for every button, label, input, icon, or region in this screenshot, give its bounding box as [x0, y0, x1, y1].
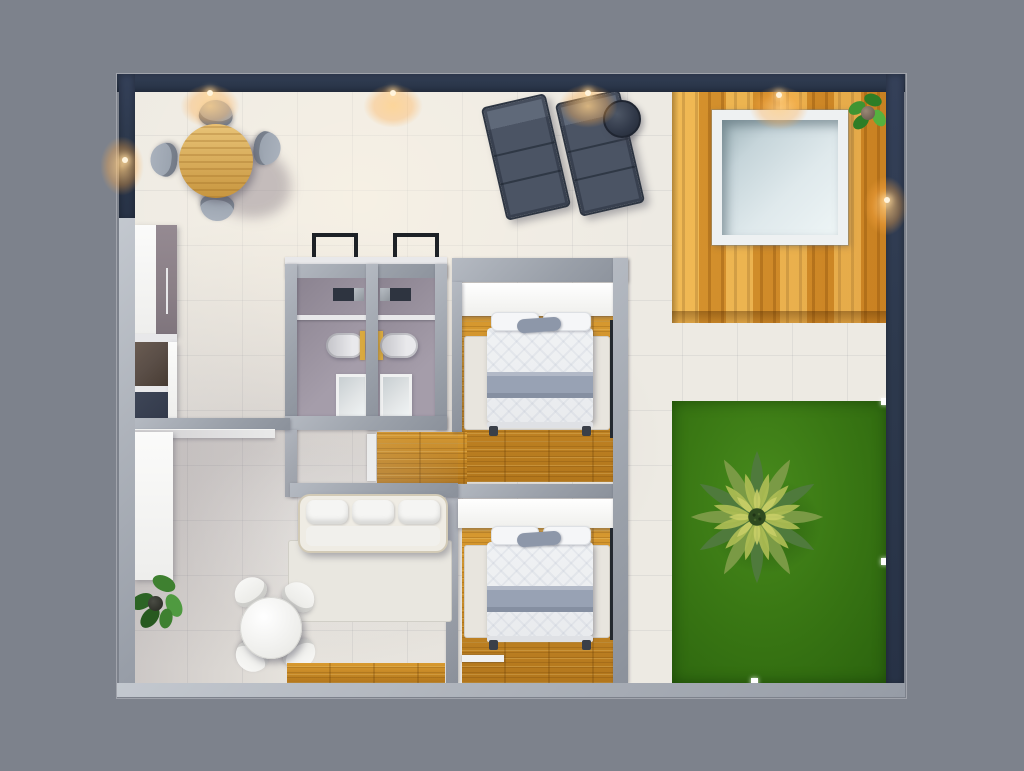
- living-room-wood-strip: [287, 663, 445, 683]
- wall-light: [207, 90, 213, 96]
- wall-light: [884, 197, 890, 203]
- bedroom-wall-right: [613, 258, 628, 683]
- pool-water: [722, 120, 838, 235]
- bathroom-wall-middle: [366, 264, 378, 430]
- cooktop-unit: [134, 342, 168, 386]
- plant-pot: [148, 596, 163, 611]
- bed-leg: [582, 426, 591, 436]
- sink-unit: [134, 392, 168, 418]
- tub-wood-panel: [360, 331, 365, 360]
- cabinet-handle: [166, 268, 168, 314]
- bed: [487, 524, 593, 652]
- bathroom-wall-left: [285, 264, 297, 430]
- wall-light: [776, 92, 782, 98]
- sconce-halo: [550, 78, 626, 134]
- sconce-halo: [172, 78, 248, 134]
- vanity-sink: [380, 288, 390, 301]
- blanket: [487, 372, 593, 398]
- sofa-cushion: [398, 500, 440, 524]
- sofa-seat: [306, 526, 440, 546]
- deck-shadow: [672, 92, 679, 323]
- wall-light: [390, 90, 396, 96]
- wall-between-bedrooms: [446, 484, 613, 498]
- vanity: [390, 288, 411, 301]
- round-table: [240, 597, 302, 659]
- wall-light: [122, 157, 128, 163]
- sofa-cushion: [352, 500, 394, 524]
- vanity-sink: [354, 288, 364, 301]
- wall-bottom: [117, 683, 905, 697]
- bathroom-wall-right: [435, 264, 447, 430]
- plant-pot: [861, 106, 875, 120]
- wall-left: [119, 218, 135, 685]
- bedroom1-wall-left: [452, 282, 462, 432]
- bathtub: [380, 333, 418, 358]
- wall-right: [886, 74, 904, 685]
- deck-edge-board: [672, 311, 888, 323]
- sconce-halo: [858, 168, 914, 244]
- bed: [487, 310, 593, 438]
- sofa-cushion: [306, 500, 348, 524]
- bed-leg: [489, 426, 498, 436]
- bed-leg: [489, 640, 498, 650]
- sconce-halo: [355, 78, 431, 134]
- bed-foot-board: [487, 422, 593, 428]
- shower: [336, 374, 368, 420]
- sconce-halo: [741, 80, 817, 136]
- wall-light: [585, 90, 591, 96]
- palm-tree: [684, 444, 830, 590]
- bedroom-wall-top: [452, 258, 628, 282]
- dining-table: [179, 124, 253, 198]
- blanket: [487, 586, 593, 612]
- floor-plant: [128, 572, 192, 632]
- leaf: [150, 572, 178, 596]
- bathtub: [326, 333, 364, 358]
- bedroom2-side-door: [462, 655, 504, 662]
- storage-cabinet: [133, 432, 173, 580]
- floor-plan-render: [0, 0, 1024, 771]
- bathroom-ledge: [378, 315, 435, 320]
- sconce-halo: [94, 128, 150, 204]
- vanity: [333, 288, 354, 301]
- kitchen-shelf: [133, 334, 177, 342]
- kitchen-side-panel: [168, 342, 177, 418]
- bed-leg: [582, 640, 591, 650]
- bathroom-wall-bottom: [285, 416, 447, 430]
- bed-foot-board: [487, 636, 593, 642]
- bathroom-ledge: [297, 315, 366, 320]
- sofa: [298, 494, 448, 553]
- shower: [380, 374, 412, 420]
